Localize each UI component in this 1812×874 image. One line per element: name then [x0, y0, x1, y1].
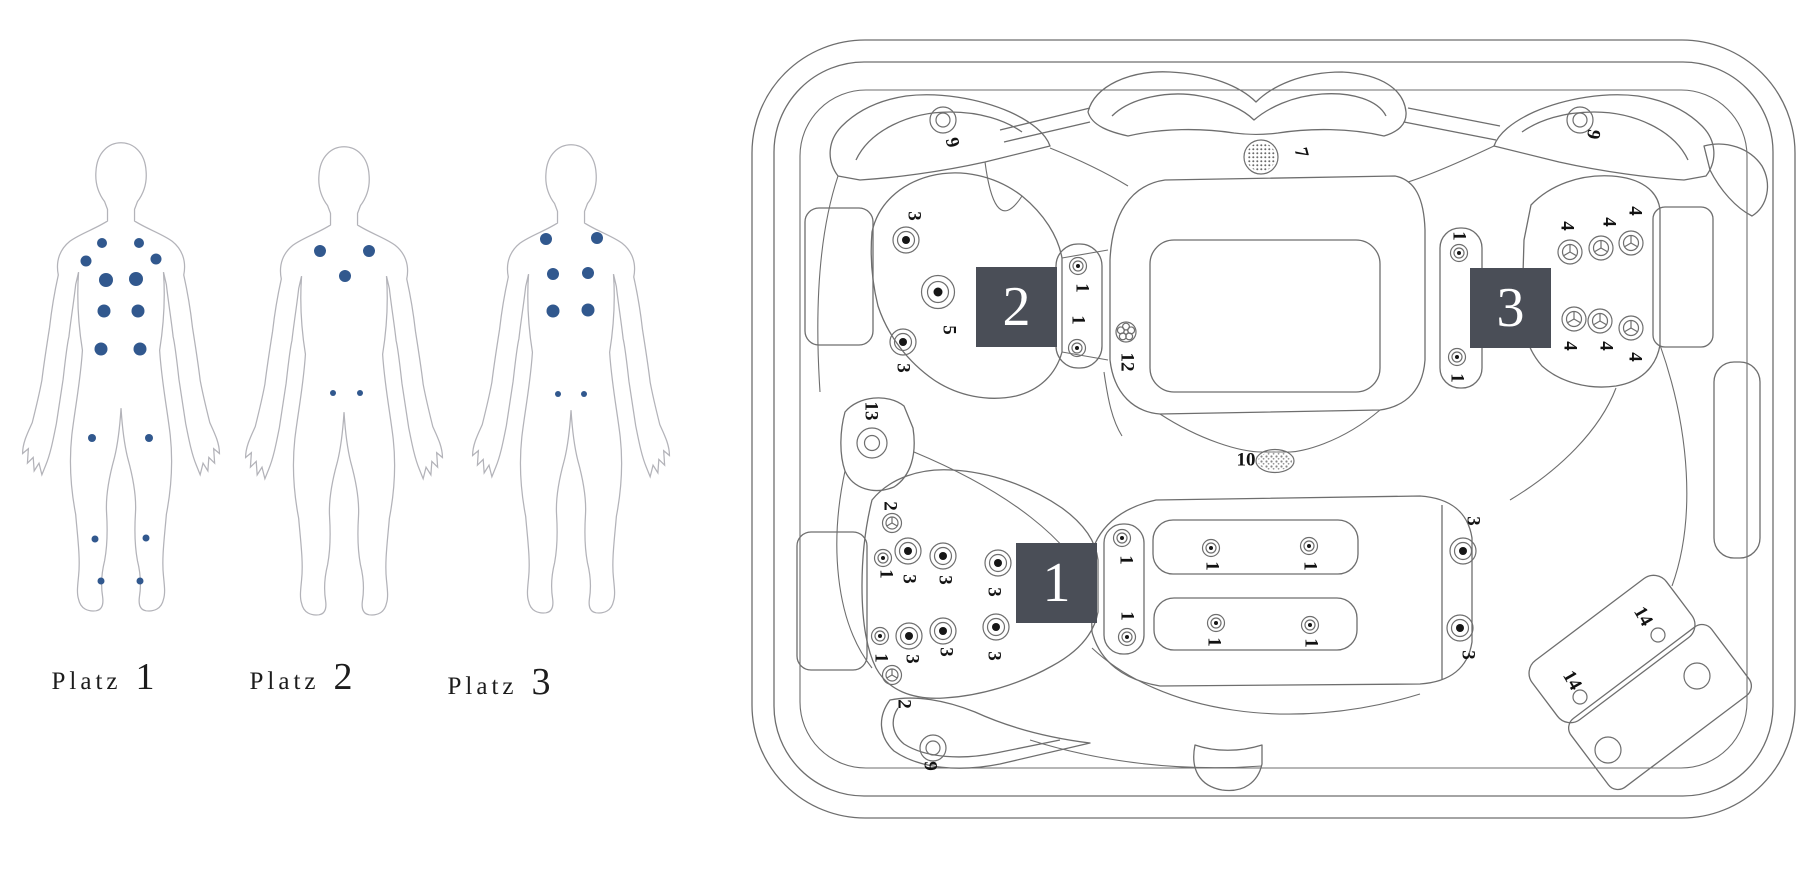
- platz-2-number: 2: [334, 655, 353, 699]
- jet-1-icon: [1069, 340, 1086, 357]
- platz-1-number: 1: [136, 655, 155, 699]
- jet-4-icon: [1588, 309, 1612, 333]
- platz-3-label: Platz 3: [448, 660, 551, 704]
- jet-3-icon: [893, 227, 919, 253]
- seat-3-badge: 3: [1470, 268, 1551, 348]
- coverage-dot: [540, 233, 552, 245]
- coverage-dot: [95, 343, 108, 356]
- jet-1-icon: [875, 550, 892, 567]
- coverage-dot: [88, 434, 96, 442]
- seat-1-badge: 1: [1016, 543, 1097, 623]
- jet-hole-icon: [1595, 737, 1621, 763]
- coverage-dot: [132, 305, 145, 318]
- jet-label: 3: [902, 654, 923, 664]
- jet-1-icon: [872, 628, 889, 645]
- jet-1-icon: [1449, 349, 1466, 366]
- jet-1-icon: [1301, 538, 1318, 555]
- jet-label: 4: [1560, 341, 1581, 351]
- jet-3-icon: [985, 550, 1011, 576]
- coverage-dot: [330, 390, 336, 396]
- jet-label: 9: [1582, 128, 1604, 141]
- right-wing-panel: [1714, 362, 1760, 558]
- jet-hole-icon: [1684, 663, 1710, 689]
- seat3-headrest: [1653, 207, 1713, 347]
- jet-3-icon: [930, 543, 956, 569]
- jet-label: 1: [1204, 637, 1225, 647]
- jet-label: 3: [984, 651, 1005, 661]
- coverage-dot: [151, 254, 162, 265]
- jet-label: 4: [1599, 217, 1620, 227]
- jet-1-icon: [1302, 617, 1319, 634]
- jets: [857, 107, 1710, 763]
- jet-label: 1: [1300, 561, 1321, 571]
- jet-label: 3: [984, 587, 1005, 597]
- jet-1-icon: [1203, 540, 1220, 557]
- coverage-dot: [99, 273, 113, 287]
- jet-label: 5: [939, 325, 960, 335]
- coverage-dot: [145, 434, 153, 442]
- jet-label: 1: [1116, 555, 1137, 565]
- jet-label: 1: [871, 653, 892, 663]
- display-screen: [1150, 240, 1380, 392]
- jet-2-icon: [883, 514, 902, 533]
- jet-1-icon: [1451, 245, 1468, 262]
- jet-label: 1: [1202, 561, 1223, 571]
- jet-3-icon: [1450, 538, 1476, 564]
- coverage-dot: [143, 535, 150, 542]
- jet-1-icon: [1208, 615, 1225, 632]
- jet-labels: 9793531111444444121310213331333291111113…: [861, 128, 1657, 771]
- jet-2-icon: [883, 666, 902, 685]
- lounger-bar-top: [1153, 520, 1358, 574]
- jet-12-icon: [1116, 322, 1136, 342]
- coverage-dot: [137, 578, 144, 585]
- platz-2-word: Platz: [250, 668, 320, 696]
- seat-2-badge: 2: [976, 267, 1057, 347]
- coverage-dot: [81, 256, 92, 267]
- jet-label: 3: [936, 647, 957, 657]
- tub-inner-shell: [774, 62, 1773, 796]
- jet-label: 14: [1629, 603, 1657, 630]
- jet-10-icon: [1256, 450, 1294, 473]
- jet-4-icon: [1619, 316, 1643, 340]
- platz-3-word: Platz: [448, 673, 518, 701]
- jet-label: 4: [1557, 221, 1578, 231]
- jet-3-icon: [896, 623, 922, 649]
- coverage-dot: [97, 238, 107, 248]
- jet-label: 12: [1117, 353, 1138, 372]
- jet-1-icon: [1119, 629, 1136, 646]
- filter-tray-upper: [1523, 569, 1702, 729]
- lounger-jet-strip: [1104, 524, 1144, 654]
- jet-9-icon: [930, 107, 956, 133]
- jet-label: 9: [941, 135, 964, 150]
- platz-1-word: Platz: [52, 668, 122, 696]
- jet-3-icon: [1447, 615, 1473, 641]
- coverage-dot: [98, 305, 111, 318]
- body-figure-platz-3: [473, 145, 670, 613]
- jet-14-icon: [1573, 690, 1587, 704]
- jet-label: 1: [1301, 638, 1322, 648]
- jet-label: 3: [1458, 650, 1479, 660]
- jet-label: 4: [1625, 352, 1646, 362]
- jet-label: 1: [876, 569, 897, 579]
- jet-label: 1: [1068, 315, 1089, 325]
- coverage-dot: [129, 272, 143, 286]
- platz-1-label: Platz 1: [52, 655, 155, 699]
- coverage-dot: [582, 304, 595, 317]
- jet-13-icon: [857, 428, 887, 458]
- jet-label: 2: [880, 501, 901, 511]
- jet-label: 3: [904, 211, 925, 221]
- coverage-dot: [357, 390, 363, 396]
- coverage-dot: [339, 270, 351, 282]
- jet-label: 1: [1117, 611, 1138, 621]
- jet-label: 3: [1463, 516, 1484, 526]
- seat1-headrest: [797, 532, 867, 670]
- jet-7-icon: [1244, 140, 1278, 174]
- coverage-dot: [98, 578, 105, 585]
- spa-jet-diagram: 9793531111444444121310213331333291111113…: [0, 0, 1812, 874]
- jet-label: 2: [894, 699, 915, 709]
- coverage-dot: [547, 305, 560, 318]
- tub-basin-rim: [800, 90, 1747, 768]
- jet-label: 7: [1290, 145, 1313, 160]
- jet-label: 1: [1449, 231, 1470, 241]
- jet-5-icon: [922, 276, 955, 309]
- jet-label: 4: [1596, 341, 1617, 351]
- coverage-dot: [581, 391, 587, 397]
- jet-3-icon: [983, 614, 1009, 640]
- coverage-dot: [555, 391, 561, 397]
- coverage-dot: [547, 268, 559, 280]
- coverage-dot: [92, 536, 99, 543]
- seat2-headrest: [805, 208, 873, 345]
- platz-2-label: Platz 2: [250, 655, 353, 699]
- jet-label: 13: [861, 402, 882, 421]
- diagram-canvas: 9793531111444444121310213331333291111113…: [0, 0, 1812, 874]
- lounger-bar-bottom: [1154, 598, 1357, 650]
- lounger-region: [1090, 496, 1472, 686]
- corner-pod-top-left-inner: [856, 112, 1022, 160]
- pillow-inner-line: [1112, 94, 1386, 120]
- coverage-dot: [591, 232, 603, 244]
- corner-pod-top-right-inner: [1522, 112, 1688, 160]
- jet-1-icon: [1114, 530, 1131, 547]
- jet-label: 4: [1625, 206, 1646, 216]
- pillow-top: [1088, 72, 1406, 136]
- jet-4-icon: [1589, 236, 1613, 260]
- body-figure-platz-1: [23, 143, 220, 611]
- coverage-dot: [314, 245, 326, 257]
- jet-label: 9: [920, 761, 941, 771]
- coverage-dot: [363, 245, 375, 257]
- jet-9-icon: [920, 735, 946, 761]
- jet-3-icon: [895, 538, 921, 564]
- platz-3-number: 3: [532, 660, 551, 704]
- jet-4-icon: [1562, 307, 1586, 331]
- jet-label: 10: [1237, 449, 1256, 470]
- pillow-right-wing: [1404, 108, 1500, 140]
- seat2-jet-strip: [1056, 244, 1102, 368]
- jet-14-icon: [1651, 628, 1665, 642]
- jet-4-icon: [1558, 240, 1582, 264]
- coverage-dot: [134, 238, 144, 248]
- body-figure-platz-2: [246, 147, 443, 615]
- jet-1-icon: [1070, 258, 1087, 275]
- coverage-dot: [582, 267, 594, 279]
- coverage-dot: [134, 343, 147, 356]
- jet-label: 3: [893, 363, 914, 373]
- jet-4-icon: [1619, 231, 1643, 255]
- jet-label: 1: [1447, 373, 1468, 383]
- jet-label: 3: [935, 575, 956, 585]
- jet-label: 3: [899, 574, 920, 584]
- jet-label: 1: [1072, 283, 1093, 293]
- jet-coverage-dots: [81, 232, 604, 585]
- jet-3-icon: [930, 618, 956, 644]
